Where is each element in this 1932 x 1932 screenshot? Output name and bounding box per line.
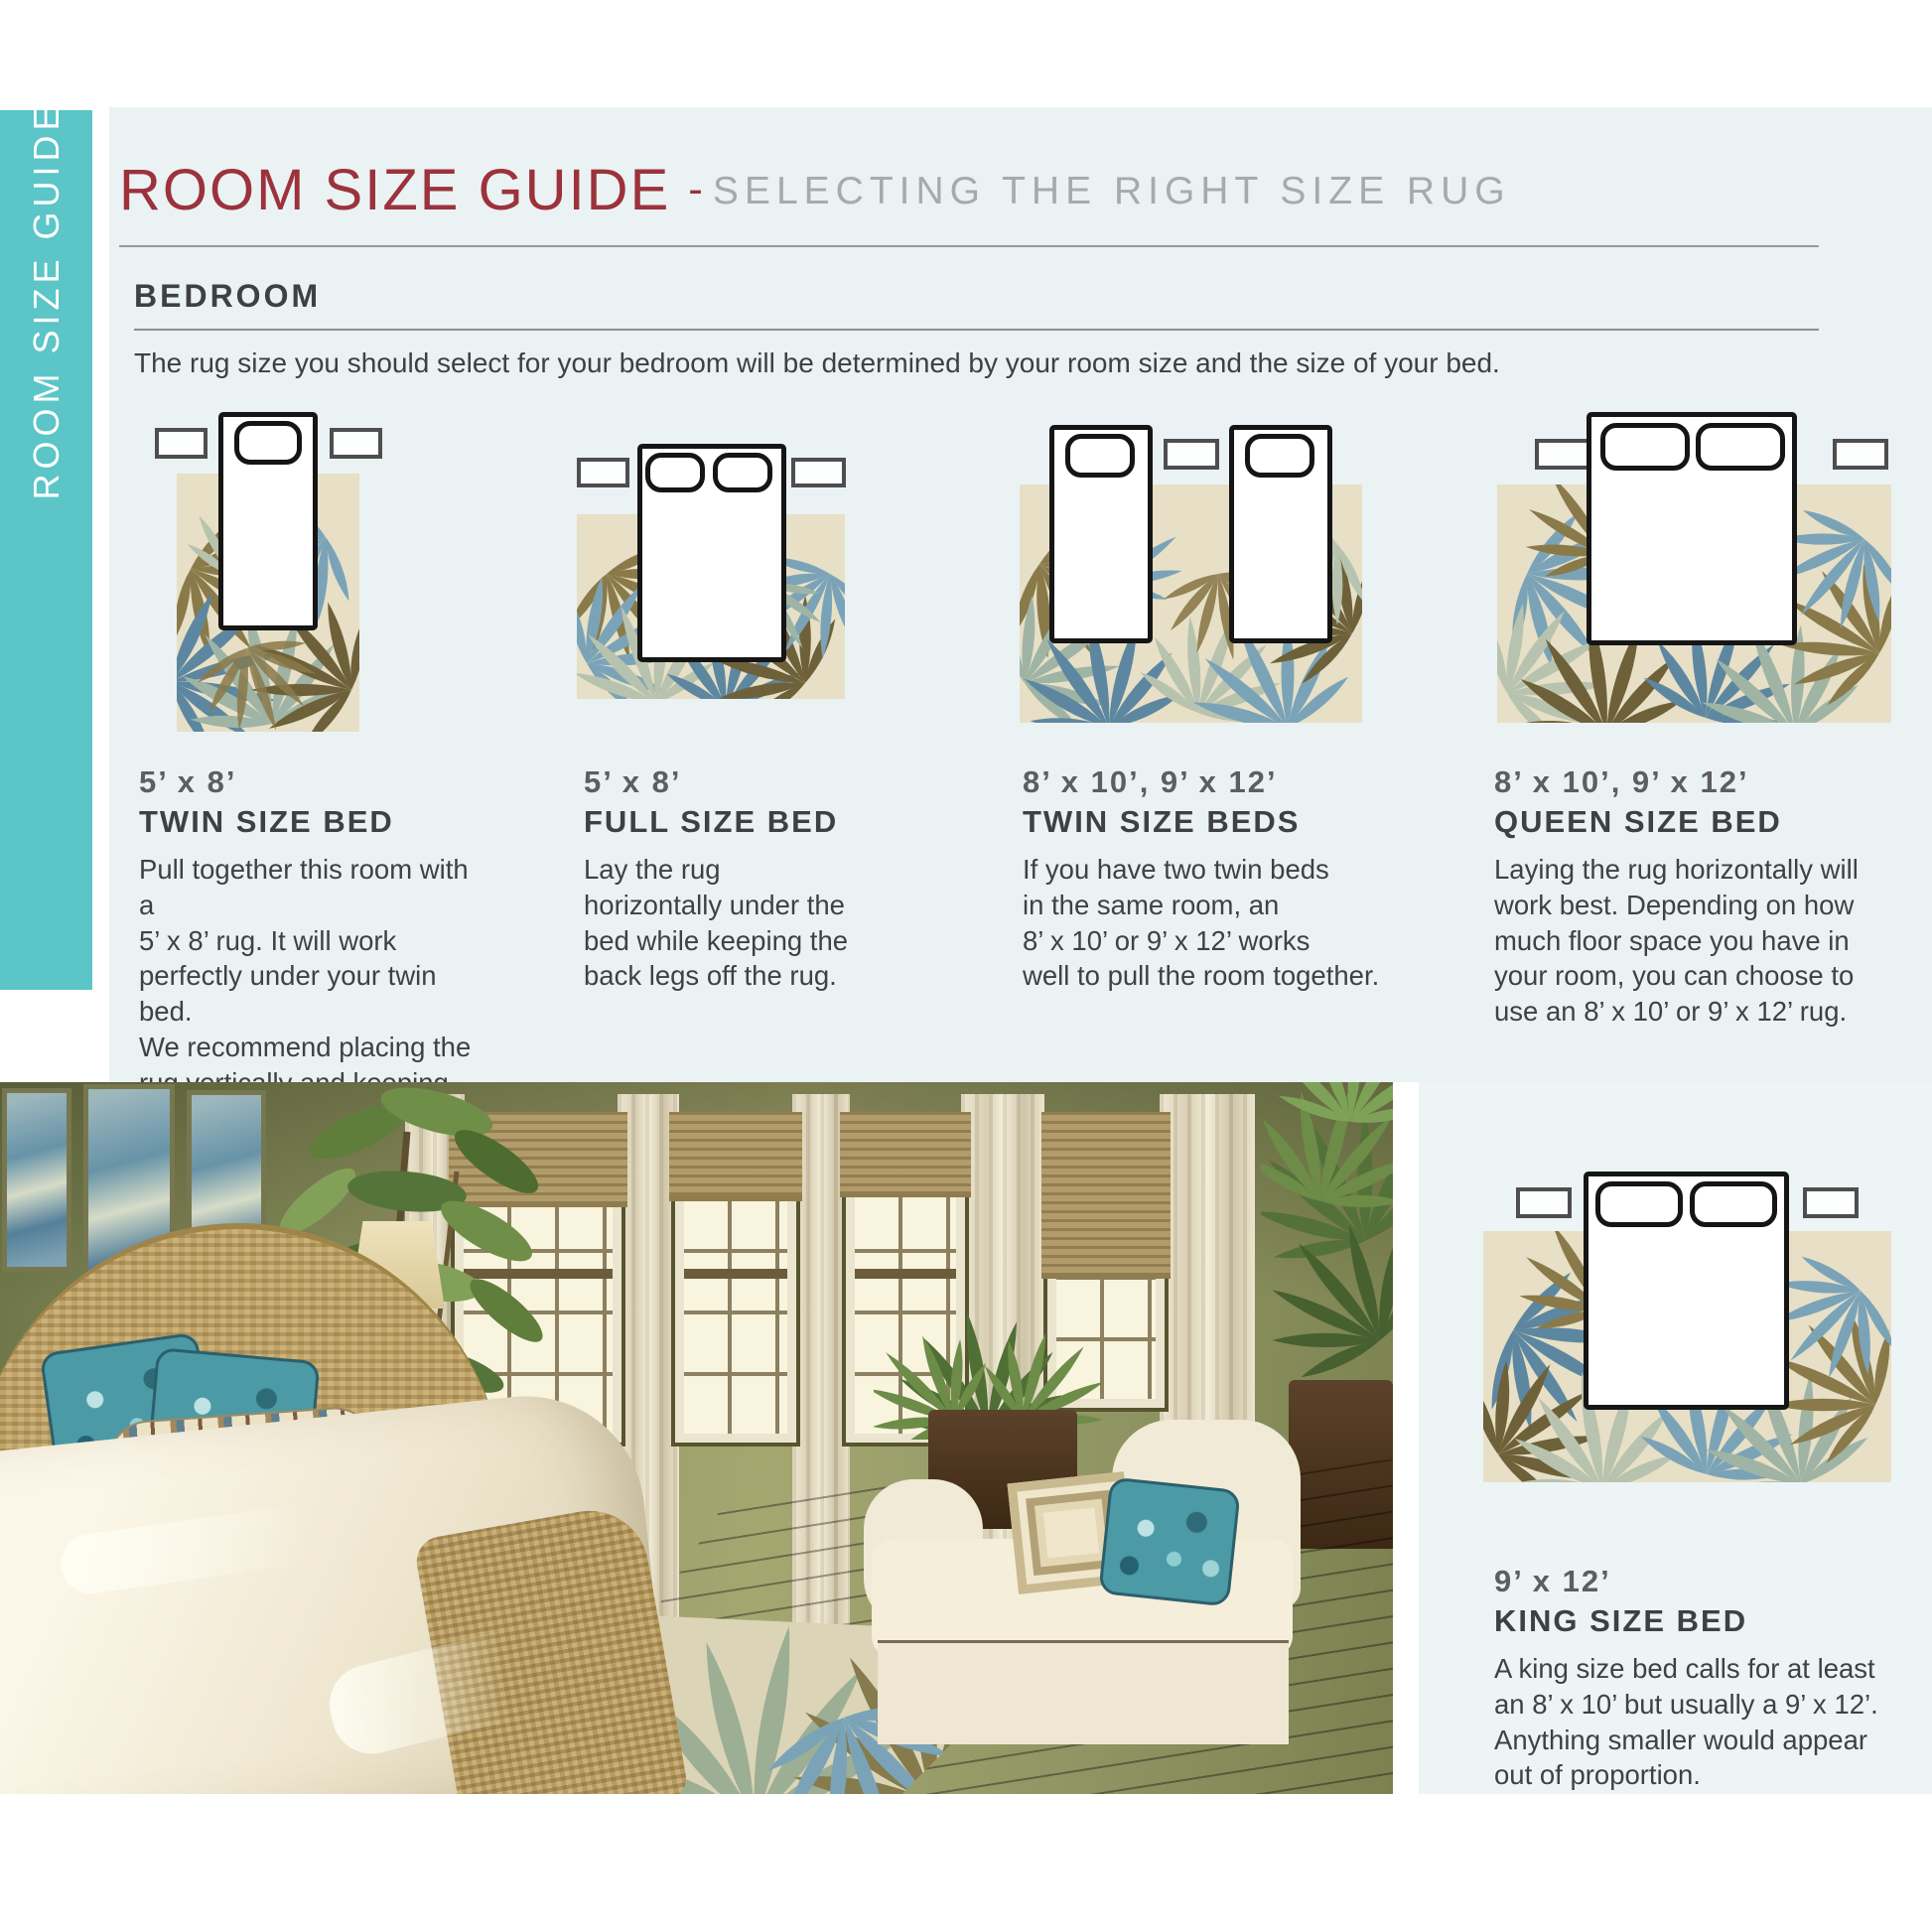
pillow [1696, 423, 1785, 471]
guide-size: 8’ x 10’, 9’ x 12’ [1023, 764, 1380, 800]
guide-description: Laying the rug horizontally will work be… [1494, 852, 1931, 1030]
pillow [1245, 434, 1314, 478]
photo-corner-plant [1261, 1082, 1393, 1410]
chaise-teal-pillow [1098, 1476, 1241, 1606]
photo-chaise [864, 1420, 1301, 1747]
room-size-guide-page: ROOM SIZE GUIDE ROOM SIZE GUIDE-SELECTIN… [0, 0, 1932, 1932]
nightstand [155, 428, 207, 459]
guide-bed-type: FULL SIZE BED [584, 804, 901, 840]
guide-description: Lay the rug horizontally under the bed w… [584, 852, 901, 994]
pillow [234, 421, 302, 465]
photo-roman-shade [840, 1112, 971, 1197]
pillow [645, 453, 705, 492]
sidebar-label: ROOM SIZE GUIDE [26, 101, 68, 499]
guide-bed-type: QUEEN SIZE BED [1494, 804, 1931, 840]
header: ROOM SIZE GUIDE-SELECTING THE RIGHT SIZE… [119, 157, 1511, 223]
guide-size: 5’ x 8’ [584, 764, 901, 800]
nightstand [577, 458, 629, 487]
guide-size: 9’ x 12’ [1494, 1564, 1931, 1599]
header-divider [119, 245, 1819, 247]
pillow [713, 453, 772, 492]
nightstand [1164, 439, 1219, 470]
guide-twins: 8’ x 10’, 9’ x 12’ TWIN SIZE BEDS If you… [1023, 764, 1380, 994]
guide-bed-type: KING SIZE BED [1494, 1603, 1931, 1639]
sidebar: ROOM SIZE GUIDE [0, 110, 92, 990]
section-heading: BEDROOM [134, 278, 321, 315]
pillow [1595, 1181, 1683, 1227]
guide-description: A king size bed calls for at least an 8’… [1494, 1651, 1931, 1793]
page-subtitle: SELECTING THE RIGHT SIZE RUG [713, 170, 1511, 212]
chaise-skirt [878, 1640, 1289, 1744]
nightstand [1516, 1187, 1572, 1218]
guide-bed-type: TWIN SIZE BED [139, 804, 477, 840]
guide-king: 9’ x 12’ KING SIZE BED A king size bed c… [1494, 1564, 1931, 1793]
section-intro: The rug size you should select for your … [134, 347, 1500, 379]
nightstand [1535, 439, 1590, 470]
nightstand [1833, 439, 1888, 470]
nightstand [330, 428, 382, 459]
guide-size: 8’ x 10’, 9’ x 12’ [1494, 764, 1931, 800]
nightstand [1803, 1187, 1859, 1218]
guide-size: 5’ x 8’ [139, 764, 477, 800]
window-rail [684, 1269, 787, 1279]
section-divider [134, 329, 1819, 331]
photo-roman-shade [669, 1112, 802, 1201]
nightstand [791, 458, 846, 487]
guide-queen: 8’ x 10’, 9’ x 12’ QUEEN SIZE BED Laying… [1494, 764, 1931, 1030]
title-separator: - [688, 165, 703, 213]
photo-wall-art [2, 1088, 71, 1272]
bedroom-photo [0, 1082, 1393, 1794]
guide-description: If you have two twin beds in the same ro… [1023, 852, 1380, 994]
pillow [1065, 434, 1135, 478]
pillow [1690, 1181, 1777, 1227]
photo-roman-shade [1041, 1112, 1171, 1279]
guide-bed-type: TWIN SIZE BEDS [1023, 804, 1380, 840]
guide-full: 5’ x 8’ FULL SIZE BED Lay the rug horizo… [584, 764, 901, 994]
page-title: ROOM SIZE GUIDE [119, 158, 670, 222]
pillow [1600, 423, 1690, 471]
